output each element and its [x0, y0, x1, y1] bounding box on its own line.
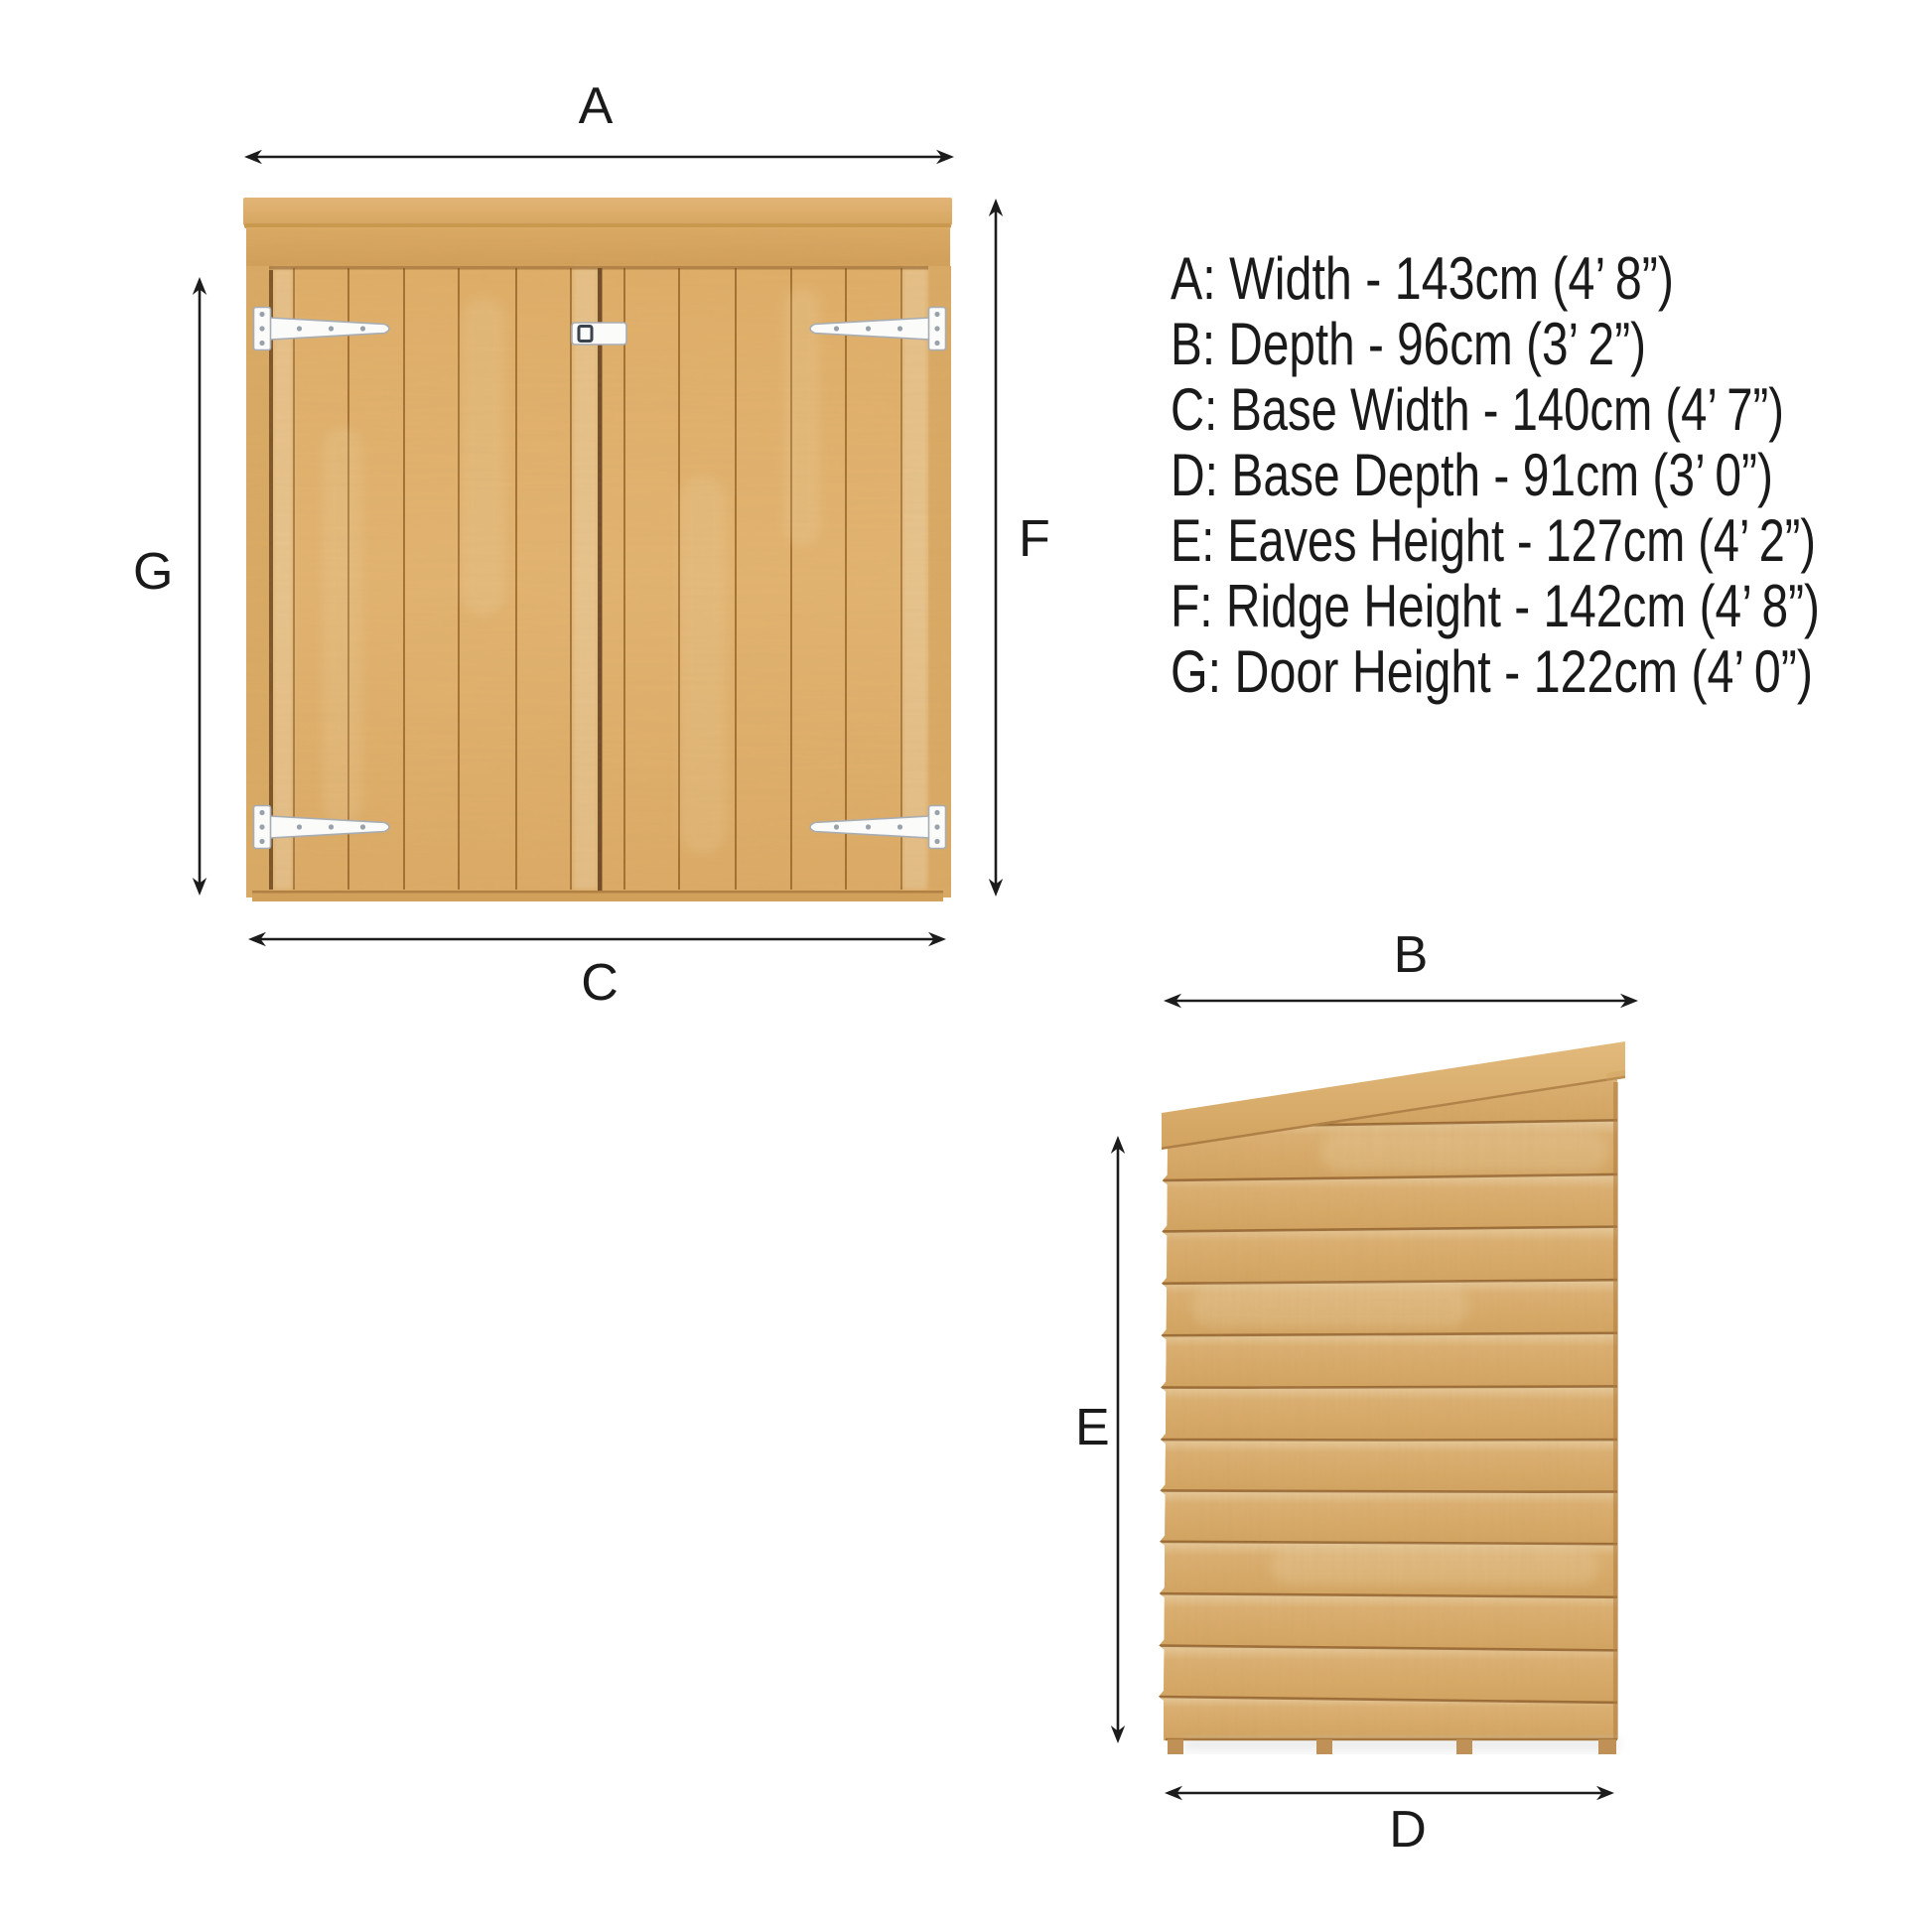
- svg-text:G: G: [133, 543, 173, 601]
- svg-text:G: Door Height - 122cm (4’ 0”): G: Door Height - 122cm (4’ 0”): [1171, 638, 1813, 705]
- svg-text:B: B: [1394, 926, 1429, 984]
- svg-text:C: Base Width - 140cm (4’ 7”): C: Base Width - 140cm (4’ 7”): [1171, 376, 1784, 443]
- svg-text:A: A: [579, 77, 614, 135]
- svg-text:A: Width - 143cm (4’ 8”): A: Width - 143cm (4’ 8”): [1171, 245, 1674, 312]
- svg-text:D: D: [1389, 1801, 1427, 1859]
- svg-text:E: E: [1075, 1399, 1110, 1456]
- svg-text:C: C: [581, 954, 619, 1012]
- svg-text:F: Ridge Height - 142cm (4’ 8”: F: Ridge Height - 142cm (4’ 8”): [1171, 573, 1820, 639]
- svg-text:E: Eaves Height - 127cm (4’ 2”: E: Eaves Height - 127cm (4’ 2”): [1171, 507, 1816, 574]
- svg-text:D: Base Depth - 91cm (3’ 0”): D: Base Depth - 91cm (3’ 0”): [1171, 442, 1773, 508]
- svg-text:B: Depth - 96cm (3’ 2”): B: Depth - 96cm (3’ 2”): [1171, 311, 1646, 377]
- svg-text:F: F: [1019, 510, 1050, 568]
